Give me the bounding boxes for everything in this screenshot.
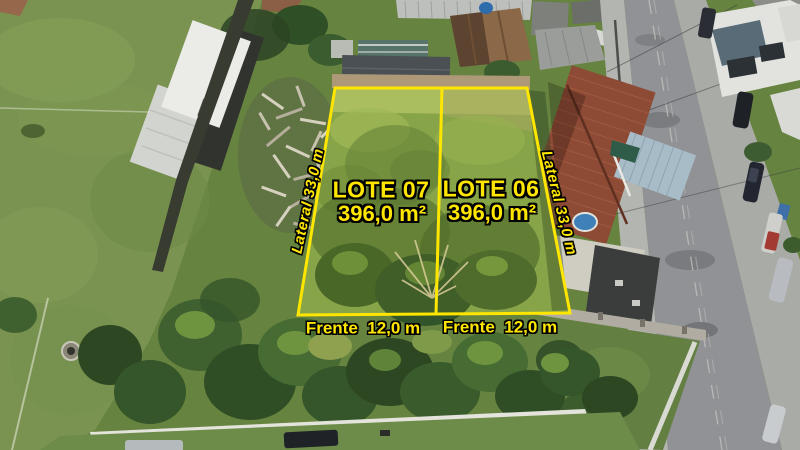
lot07-area-label: 396,0 m² [338,203,426,225]
frente-lot06-label: Frente 12,0 m [443,319,557,336]
lot06-name-label: LOTE 06 [443,178,540,201]
lot06-area-label: 396,0 m² [448,202,536,224]
aerial-photo: LOTE 07 396,0 m² LOTE 06 396,0 m² Latera… [0,0,800,450]
lot07-name-label: LOTE 07 [333,179,430,202]
frente-lot07-label: Frente 12,0 m [306,320,420,337]
